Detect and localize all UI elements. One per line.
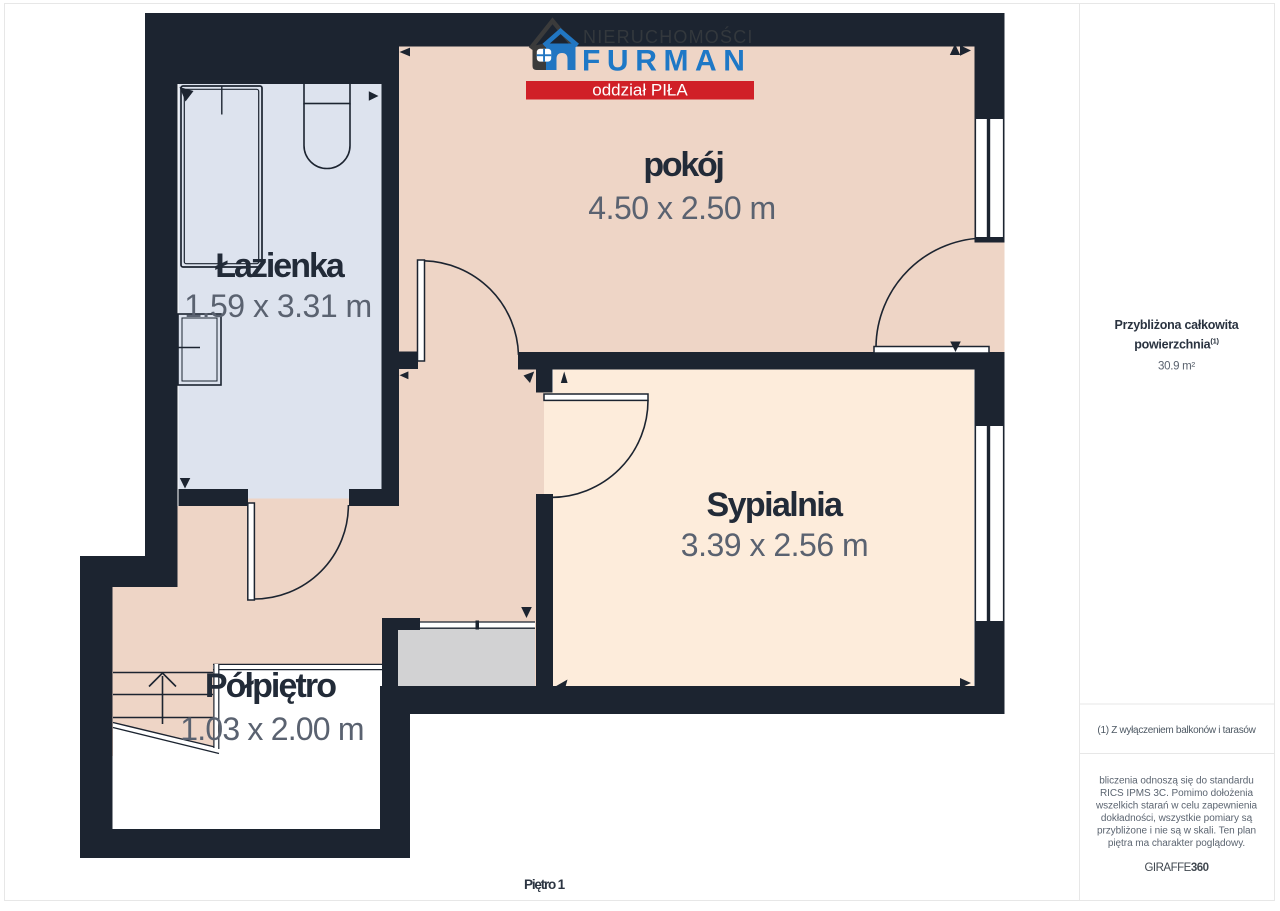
svg-text:(1) Z wyłączeniem balkonów i t: (1) Z wyłączeniem balkonów i tarasów xyxy=(1097,725,1256,736)
svg-text:bliczenia odnoszą się do stand: bliczenia odnoszą się do standardu xyxy=(1099,776,1254,787)
svg-text:Sypialnia: Sypialnia xyxy=(707,486,845,524)
svg-text:pokój: pokój xyxy=(643,146,723,184)
svg-text:1.59 x 3.31 m: 1.59 x 3.31 m xyxy=(184,288,371,324)
svg-text:Przybliżona całkowita: Przybliżona całkowita xyxy=(1115,318,1240,332)
svg-text:wszelkich starań w celu zapewn: wszelkich starań w celu zapewnienia xyxy=(1095,801,1258,812)
svg-text:GIRAFFE360: GIRAFFE360 xyxy=(1144,862,1208,874)
svg-text:przybliżone i nie są w skali.: przybliżone i nie są w skali. Ten plan xyxy=(1097,826,1256,837)
svg-text:4.50 x 2.50 m: 4.50 x 2.50 m xyxy=(588,190,775,226)
svg-text:Łazienka: Łazienka xyxy=(215,247,346,285)
svg-text:Piętro 1: Piętro 1 xyxy=(524,877,566,892)
svg-text:30.9 m²: 30.9 m² xyxy=(1158,361,1195,373)
svg-text:dokładności, wszystkie pomiary: dokładności, wszystkie pomiary są xyxy=(1101,813,1253,824)
svg-text:oddział PIŁA: oddział PIŁA xyxy=(592,81,688,100)
svg-text:1.03 x 2.00 m: 1.03 x 2.00 m xyxy=(180,711,364,747)
svg-text:powierzchnia(1): powierzchnia(1) xyxy=(1134,337,1219,352)
svg-text:3.39 x 2.56 m: 3.39 x 2.56 m xyxy=(681,527,868,563)
svg-text:piętra ma charakter poglądowy.: piętra ma charakter poglądowy. xyxy=(1108,838,1245,849)
svg-text:Półpiętro: Półpiętro xyxy=(205,667,336,705)
svg-text:FURMAN: FURMAN xyxy=(582,45,752,78)
svg-text:RICS IPMS 3C. Pomimo dołożenia: RICS IPMS 3C. Pomimo dołożenia xyxy=(1100,788,1253,799)
